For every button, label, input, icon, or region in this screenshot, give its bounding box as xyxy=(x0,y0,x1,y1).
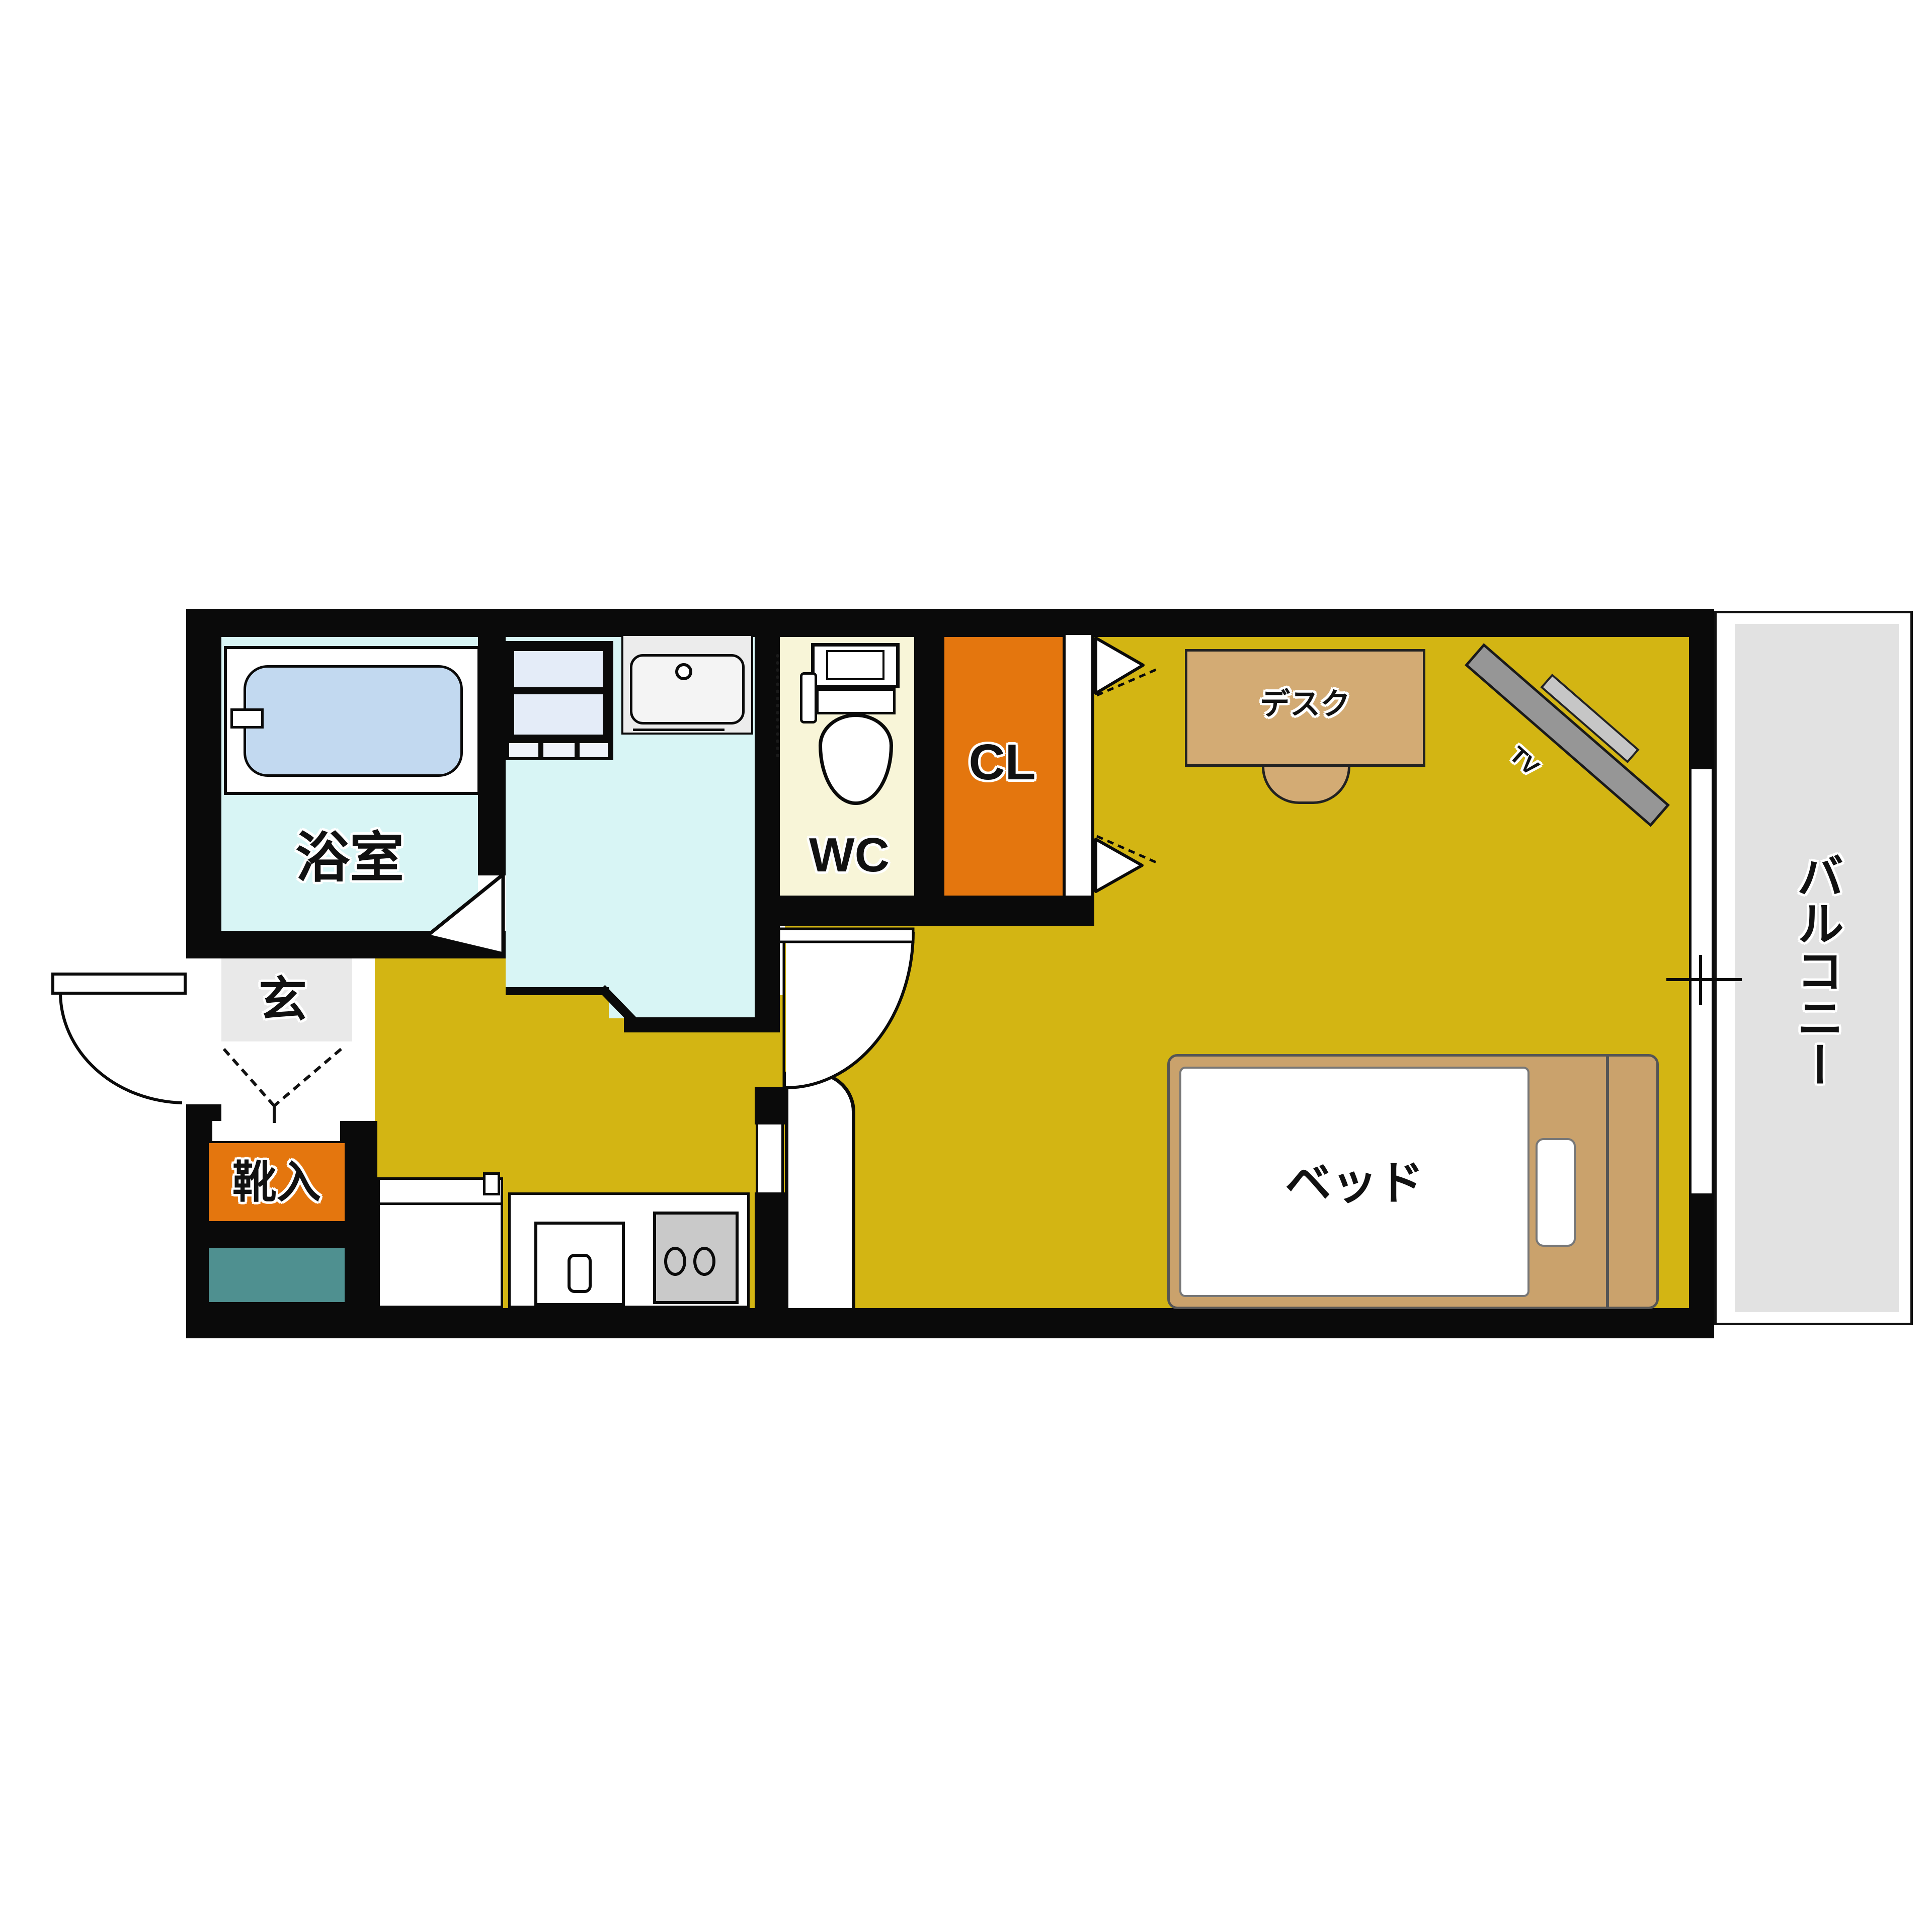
washroom-step-diagonal xyxy=(602,988,633,1020)
bed-label: ベッド xyxy=(1285,1160,1424,1206)
bathroom-label: 浴室 xyxy=(295,831,404,885)
balcony-label: バルコニー xyxy=(1793,852,1840,1088)
wc-label: WC xyxy=(809,831,890,879)
hall-door-leaf xyxy=(779,929,913,942)
hall-door-swing-area xyxy=(786,932,913,1088)
closet-label: CL xyxy=(969,737,1035,787)
entrance-step-mark-left xyxy=(224,1049,274,1106)
entrance-label: 玄 xyxy=(259,976,307,1024)
entrance-door-leaf xyxy=(53,974,185,993)
desk-label: デスク xyxy=(1260,689,1350,719)
entrance-step-mark-right xyxy=(274,1049,341,1106)
bathroom-door-symbol xyxy=(427,874,503,954)
shoe-cabinet-label: 靴入 xyxy=(232,1160,321,1204)
door-and-symbol-overlay xyxy=(0,0,1932,1932)
floor-plan-canvas: 浴室 WC CL 玄 靴入 デスク TV ベッド バルコニー xyxy=(0,0,1932,1932)
